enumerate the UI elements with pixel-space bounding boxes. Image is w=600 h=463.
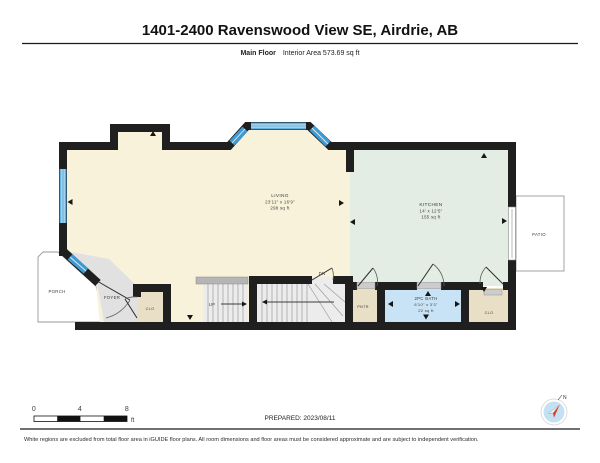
- bath-threshold: [417, 283, 441, 289]
- scale-tick-8: 8: [125, 406, 129, 413]
- stair-rail-cap: [196, 277, 248, 284]
- kitchen-closet-label: CLO: [485, 311, 494, 315]
- stairs-down-floor: [257, 277, 345, 326]
- floor-subtitle: Main FloorInterior Area 573.69 sq ft: [240, 50, 359, 57]
- scale-bar-segment: [104, 416, 127, 422]
- stairs-up-label: UP: [209, 302, 216, 307]
- floor-plan-page: 1401-2400 Ravenswood View SE, Airdrie, A…: [0, 0, 600, 463]
- pantry-label: PNTR: [357, 305, 369, 309]
- compass-icon: N: [541, 395, 567, 425]
- bath-area: 22 sq ft: [418, 308, 434, 313]
- scale-bar-segment: [57, 416, 80, 422]
- living-dims: 23'11" x 16'9": [265, 200, 295, 205]
- compass-north-arrow: [558, 395, 562, 400]
- living-label: LIVING: [271, 193, 289, 199]
- patio-sliding-door: [509, 207, 516, 260]
- scale-bar: 0 4 8 ft: [32, 406, 135, 424]
- disclaimer-text: White regions are excluded from total fl…: [24, 437, 479, 443]
- porch-label: PORCH: [48, 289, 65, 294]
- compass-north-label: N: [563, 395, 567, 401]
- stairs-down-label: DN: [319, 271, 326, 276]
- scale-tick-4: 4: [78, 406, 82, 413]
- bath-dims: 6'10" x 3'3": [414, 302, 438, 307]
- floor-plan-svg: 1401-2400 Ravenswood View SE, Airdrie, A…: [0, 0, 600, 463]
- bath-label: 2PC BATH: [414, 296, 437, 301]
- scale-tick-0: 0: [32, 406, 36, 413]
- room-floors: [63, 127, 512, 326]
- prepared-date: PREPARED: 2023/08/11: [265, 415, 336, 422]
- kitchen-label: KITCHEN: [419, 202, 442, 208]
- floor-label: Main Floor: [240, 50, 276, 57]
- closet-threshold: [484, 290, 502, 296]
- patio-label: PATIO: [532, 232, 546, 237]
- kitchen-dims: 14' x 12'5": [420, 209, 443, 214]
- living-area: 298 sq ft: [270, 206, 290, 211]
- scale-unit: ft: [131, 418, 135, 424]
- kitchen-area: 155 sq ft: [421, 215, 441, 220]
- foyer-closet-label: CLO: [146, 307, 155, 311]
- interior-area-label: Interior Area 573.69 sq ft: [283, 50, 360, 57]
- foyer-label: FOYER: [104, 295, 120, 300]
- page-title: 1401-2400 Ravenswood View SE, Airdrie, A…: [142, 22, 458, 39]
- header: 1401-2400 Ravenswood View SE, Airdrie, A…: [22, 22, 578, 57]
